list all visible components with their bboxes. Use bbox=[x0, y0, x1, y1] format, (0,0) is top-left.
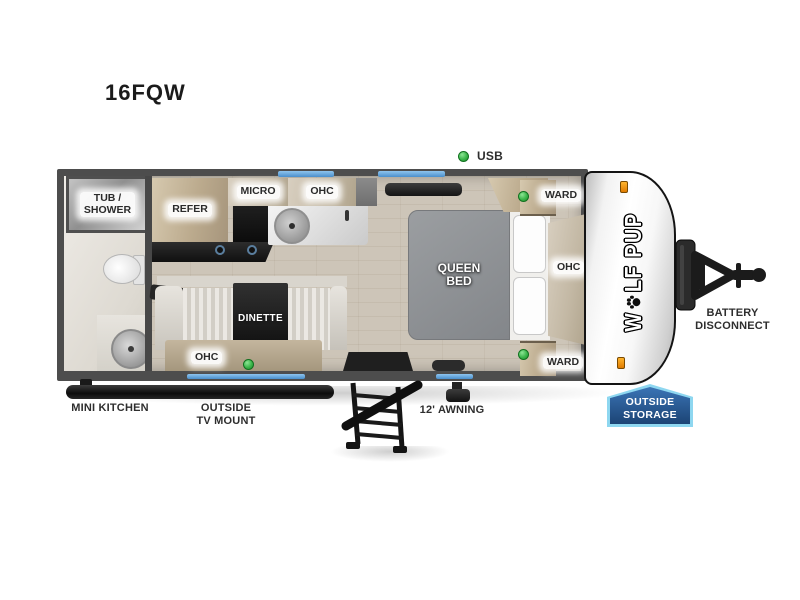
window-strip bbox=[278, 171, 334, 177]
mini-kitchen-label: MINI KITCHEN bbox=[60, 402, 160, 415]
marker-light-icon bbox=[617, 357, 625, 369]
kitchen-end-wall bbox=[356, 178, 377, 206]
queen-bed: QUEEN BED bbox=[408, 210, 510, 340]
dinette-indicator-icon bbox=[243, 359, 254, 370]
toilet-icon bbox=[103, 254, 141, 284]
pillow-icon bbox=[513, 277, 546, 335]
pillow-icon bbox=[513, 215, 546, 273]
floorplan-body: TUB / SHOWER REFER MICRO OHC bbox=[57, 169, 588, 381]
awning-arm-icon bbox=[446, 389, 470, 402]
queen-bed-label: QUEEN BED bbox=[438, 262, 481, 289]
front-ohc-label: OHC bbox=[553, 261, 584, 274]
front-ohc-cabinet bbox=[548, 214, 586, 345]
logo-text-suffix: LF PUP bbox=[620, 212, 647, 292]
ward-bottom-indicator-icon bbox=[518, 349, 529, 360]
usb-indicator-icon bbox=[458, 151, 469, 162]
bathroom-wall bbox=[145, 176, 152, 371]
tub-shower-label: TUB / SHOWER bbox=[80, 192, 135, 217]
refer-label: REFER bbox=[168, 203, 212, 216]
window-strip bbox=[378, 171, 445, 177]
ward-top-indicator-icon bbox=[518, 191, 529, 202]
burner-icon bbox=[215, 245, 225, 255]
outside-storage-label: OUTSIDE STORAGE bbox=[610, 387, 690, 424]
door-window-strip bbox=[436, 374, 473, 379]
burner-icon bbox=[247, 245, 257, 255]
ward-bottom-label: WARD bbox=[543, 356, 583, 369]
dinette-ohc-label: OHC bbox=[191, 351, 222, 364]
rear-bumper bbox=[66, 385, 334, 399]
dinette-armrest bbox=[330, 286, 347, 350]
floorplan-page: 16FQW USB TUB / SHOWER REFER MICRO bbox=[0, 0, 800, 600]
awning-label: 12' AWNING bbox=[414, 404, 490, 417]
dinette-label: DINETTE bbox=[238, 313, 283, 324]
usb-label: USB bbox=[477, 149, 503, 163]
entry-step-well bbox=[343, 352, 413, 371]
entry-mat bbox=[432, 360, 465, 371]
wolf-pup-logo: W LF PUP bbox=[620, 192, 648, 352]
tv-mount-label: OUTSIDE TV MOUNT bbox=[178, 402, 274, 428]
logo-text-prefix: W bbox=[620, 312, 647, 332]
faucet-icon bbox=[345, 210, 349, 221]
kitchen-ohc-label: OHC bbox=[306, 185, 337, 198]
kitchen-sink-drain bbox=[289, 223, 295, 229]
tub-shower: TUB / SHOWER bbox=[66, 176, 149, 233]
ward-top-label: WARD bbox=[541, 189, 581, 202]
window-strip bbox=[187, 374, 305, 379]
refrigerator: REFER bbox=[152, 178, 228, 244]
microwave-cabinet: MICRO bbox=[228, 178, 288, 206]
bath-sink-drain bbox=[128, 346, 134, 352]
page-title: 16FQW bbox=[105, 80, 186, 106]
tv-icon bbox=[385, 183, 462, 196]
micro-label: MICRO bbox=[237, 185, 280, 198]
battery-disconnect-label: BATTERY DISCONNECT bbox=[680, 307, 785, 333]
kitchen-ohc-cabinet: OHC bbox=[288, 178, 356, 206]
paw-icon bbox=[625, 295, 642, 309]
